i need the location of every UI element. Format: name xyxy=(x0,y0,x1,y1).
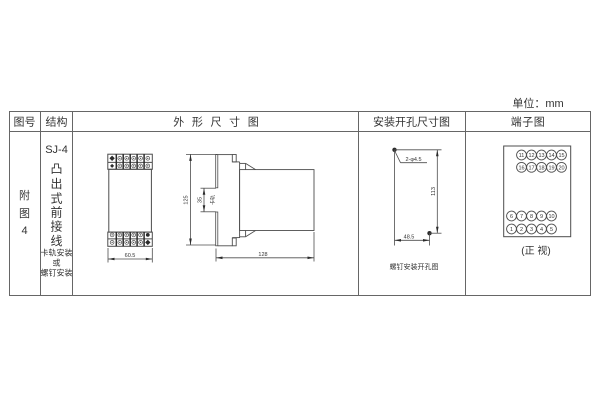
svg-text:图: 图 xyxy=(19,207,30,220)
svg-text:卡轨: 卡轨 xyxy=(210,195,217,205)
svg-text:螺钉安装: 螺钉安装 xyxy=(41,268,73,278)
svg-text:35: 35 xyxy=(197,197,203,203)
svg-text:单位：mm: 单位：mm xyxy=(512,96,563,110)
svg-text:17: 17 xyxy=(528,165,534,171)
svg-text:2-φ4.5: 2-φ4.5 xyxy=(405,157,421,163)
svg-text:外: 外 xyxy=(173,116,184,129)
svg-text:13: 13 xyxy=(538,153,544,159)
svg-text:4: 4 xyxy=(21,225,27,237)
svg-text:128: 128 xyxy=(258,252,267,258)
svg-text:尺: 尺 xyxy=(211,117,222,129)
svg-text:图号: 图号 xyxy=(14,116,36,129)
svg-text:1: 1 xyxy=(510,227,513,233)
svg-text:SJ-4: SJ-4 xyxy=(45,144,68,156)
svg-text:125: 125 xyxy=(183,195,189,204)
svg-text:60.5: 60.5 xyxy=(125,253,136,259)
svg-text:形: 形 xyxy=(192,116,203,129)
svg-text:接: 接 xyxy=(50,219,62,234)
svg-text:12: 12 xyxy=(528,153,534,159)
svg-text:式: 式 xyxy=(50,192,62,206)
svg-text:或: 或 xyxy=(53,258,61,268)
svg-text:4: 4 xyxy=(540,227,543,233)
svg-text:113: 113 xyxy=(431,187,437,196)
svg-text:线: 线 xyxy=(50,234,62,248)
svg-text:8: 8 xyxy=(530,214,533,220)
svg-text:7: 7 xyxy=(520,214,523,220)
svg-text:18: 18 xyxy=(538,165,544,171)
svg-text:15: 15 xyxy=(558,153,564,159)
svg-text:20: 20 xyxy=(558,165,564,171)
svg-text:卡轨安装: 卡轨安装 xyxy=(41,248,73,258)
svg-text:前: 前 xyxy=(50,205,62,220)
svg-text:2: 2 xyxy=(520,227,523,233)
svg-text:16: 16 xyxy=(518,165,524,171)
svg-text:10: 10 xyxy=(548,214,554,220)
svg-text:(正 视): (正 视) xyxy=(521,244,550,257)
svg-text:48.5: 48.5 xyxy=(404,234,415,240)
svg-text:9: 9 xyxy=(540,214,543,220)
svg-text:图: 图 xyxy=(248,116,259,129)
svg-text:14: 14 xyxy=(548,153,554,159)
svg-text:出: 出 xyxy=(50,177,62,191)
svg-text:11: 11 xyxy=(519,153,525,159)
svg-text:安装开孔尺寸图: 安装开孔尺寸图 xyxy=(373,115,450,129)
svg-text:附: 附 xyxy=(19,188,30,202)
svg-text:螺钉安装开孔图: 螺钉安装开孔图 xyxy=(390,262,439,271)
svg-text:5: 5 xyxy=(550,227,553,233)
svg-text:3: 3 xyxy=(530,227,533,233)
svg-text:19: 19 xyxy=(548,165,554,171)
svg-text:端子图: 端子图 xyxy=(511,116,546,129)
svg-text:凸: 凸 xyxy=(50,162,62,176)
svg-text:结构: 结构 xyxy=(46,115,68,129)
svg-text:6: 6 xyxy=(510,214,513,220)
svg-text:寸: 寸 xyxy=(229,115,240,129)
